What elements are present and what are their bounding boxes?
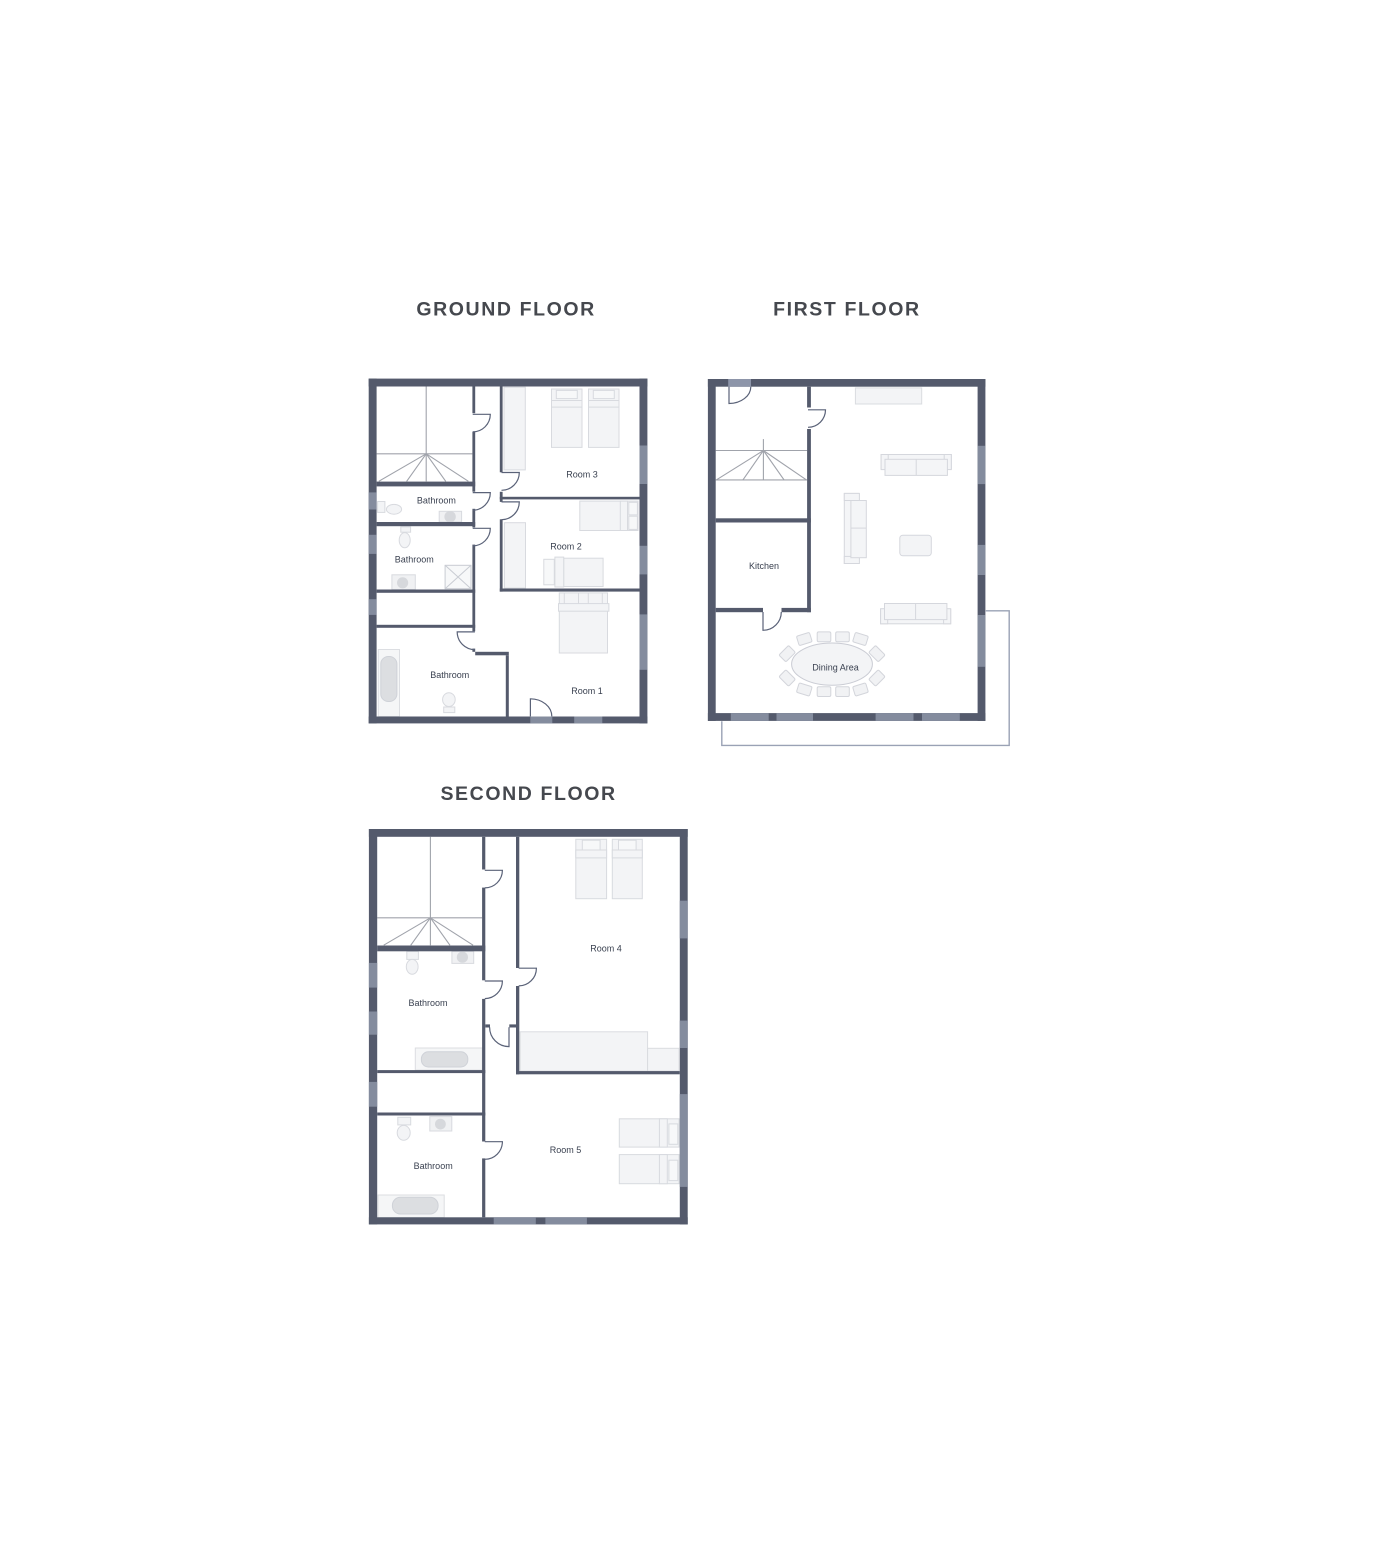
svg-text:Bathroom: Bathroom bbox=[395, 554, 434, 564]
svg-text:Room 3: Room 3 bbox=[566, 470, 598, 480]
svg-text:Bathroom: Bathroom bbox=[417, 496, 456, 506]
svg-text:Room 2: Room 2 bbox=[550, 542, 582, 552]
svg-text:Bathroom: Bathroom bbox=[408, 998, 447, 1008]
svg-text:Bathroom: Bathroom bbox=[430, 670, 469, 680]
svg-text:SECOND FLOOR: SECOND FLOOR bbox=[440, 783, 616, 805]
svg-text:Kitchen: Kitchen bbox=[749, 561, 779, 571]
svg-text:Room 5: Room 5 bbox=[550, 1145, 582, 1155]
svg-text:Dining Area: Dining Area bbox=[812, 662, 859, 672]
svg-text:FIRST FLOOR: FIRST FLOOR bbox=[773, 299, 921, 321]
svg-text:Room 4: Room 4 bbox=[590, 944, 622, 954]
svg-text:Bathroom: Bathroom bbox=[414, 1161, 453, 1171]
svg-text:Room 1: Room 1 bbox=[571, 686, 603, 696]
svg-text:GROUND FLOOR: GROUND FLOOR bbox=[416, 299, 596, 321]
